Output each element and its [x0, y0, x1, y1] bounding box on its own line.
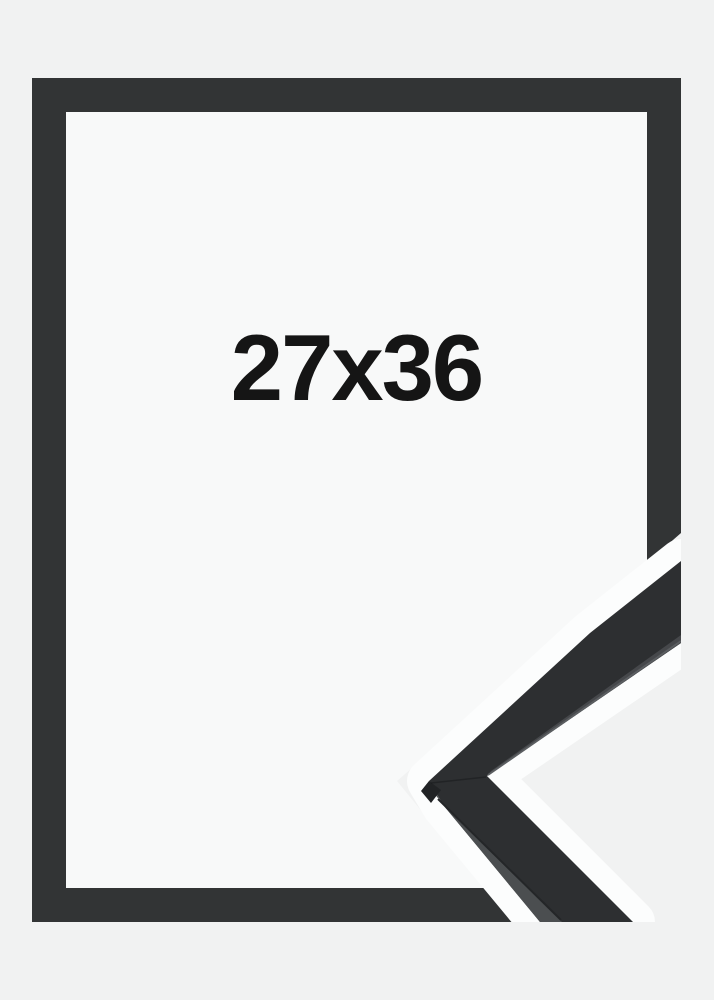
frame-illustration	[0, 0, 714, 1000]
product-image: 27x36	[0, 0, 714, 1000]
